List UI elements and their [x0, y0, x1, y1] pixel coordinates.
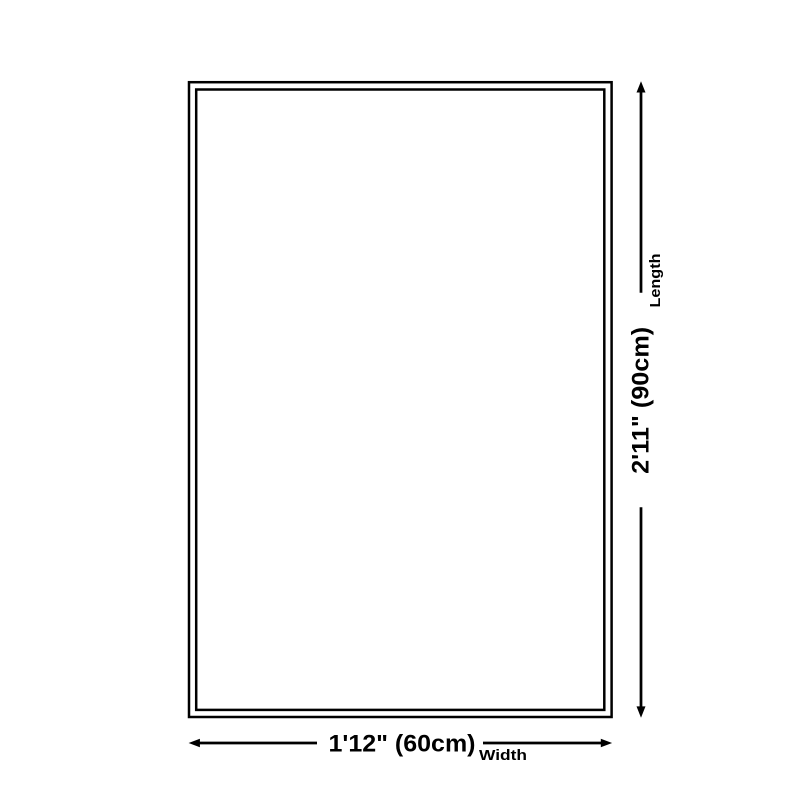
- svg-text:2'11" (90cm): 2'11" (90cm): [627, 327, 654, 474]
- svg-text:Length: Length: [647, 254, 664, 308]
- svg-text:Width: Width: [479, 747, 527, 764]
- svg-text:1'12" (60cm): 1'12" (60cm): [329, 730, 476, 757]
